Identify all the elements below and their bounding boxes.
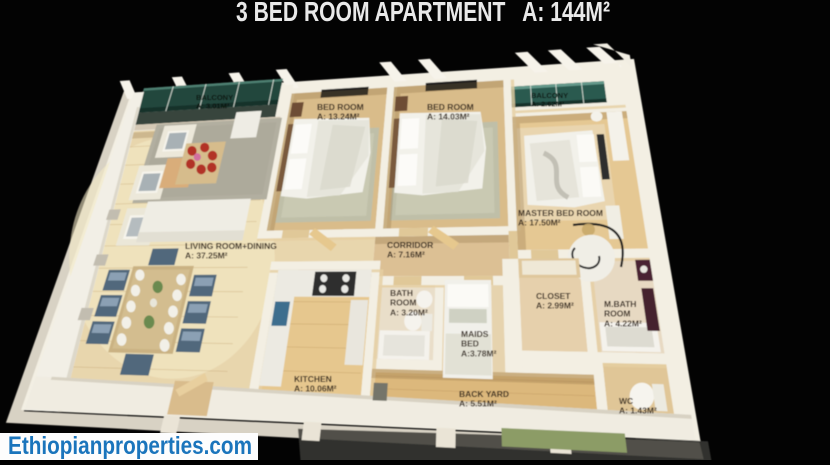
svg-text:BED: BED (461, 339, 479, 349)
svg-text:A: 2.99M²: A: 2.99M² (536, 301, 574, 311)
svg-text:BED ROOM: BED ROOM (317, 102, 364, 112)
svg-text:MAIDS: MAIDS (461, 329, 489, 339)
svg-text:LIVING ROOM+DINING: LIVING ROOM+DINING (185, 241, 277, 251)
svg-text:A: 10.06M²: A: 10.06M² (294, 384, 337, 394)
svg-text:A:3.78M²: A:3.78M² (461, 348, 497, 358)
svg-text:BALCONY: BALCONY (531, 91, 568, 100)
svg-text:A: 17.50M²: A: 17.50M² (518, 218, 561, 228)
svg-text:A: 2.62M²: A: 2.62M² (531, 100, 565, 109)
svg-text:M.BATH: M.BATH (604, 299, 636, 309)
svg-text:BALCONY: BALCONY (196, 93, 233, 102)
svg-text:MASTER BED ROOM: MASTER BED ROOM (518, 208, 603, 218)
svg-text:WC: WC (619, 396, 633, 406)
svg-text:KITCHEN: KITCHEN (294, 374, 332, 384)
svg-text:A: 7.16M²: A: 7.16M² (387, 250, 425, 260)
svg-text:A: 5.51M²: A: 5.51M² (459, 399, 497, 409)
svg-text:3 BED ROOM APARTMENT A: 144: 3 BED ROOM APARTMENT A: 144M² (236, 0, 610, 27)
svg-text:A: 37.25M²: A: 37.25M² (185, 251, 228, 261)
svg-text:ROOM: ROOM (390, 298, 416, 308)
svg-text:ROOM: ROOM (604, 309, 630, 319)
svg-text:A: 1.43M²: A: 1.43M² (619, 406, 657, 416)
svg-text:A: 4.22M²: A: 4.22M² (604, 318, 642, 328)
svg-text:A: 3.20M²: A: 3.20M² (390, 307, 428, 317)
svg-text:BATH: BATH (390, 288, 413, 298)
svg-text:CLOSET: CLOSET (536, 291, 571, 301)
svg-text:A: 3.01M²: A: 3.01M² (196, 102, 230, 111)
svg-text:A: 14.03M²: A: 14.03M² (427, 112, 470, 122)
svg-text:Ethiopianproperties.com: Ethiopianproperties.com (8, 432, 252, 460)
svg-text:BED ROOM: BED ROOM (427, 102, 474, 112)
svg-text:A: 13.24M²: A: 13.24M² (317, 112, 360, 122)
svg-text:CORRIDOR: CORRIDOR (387, 240, 433, 250)
svg-text:BACK YARD: BACK YARD (459, 389, 509, 399)
